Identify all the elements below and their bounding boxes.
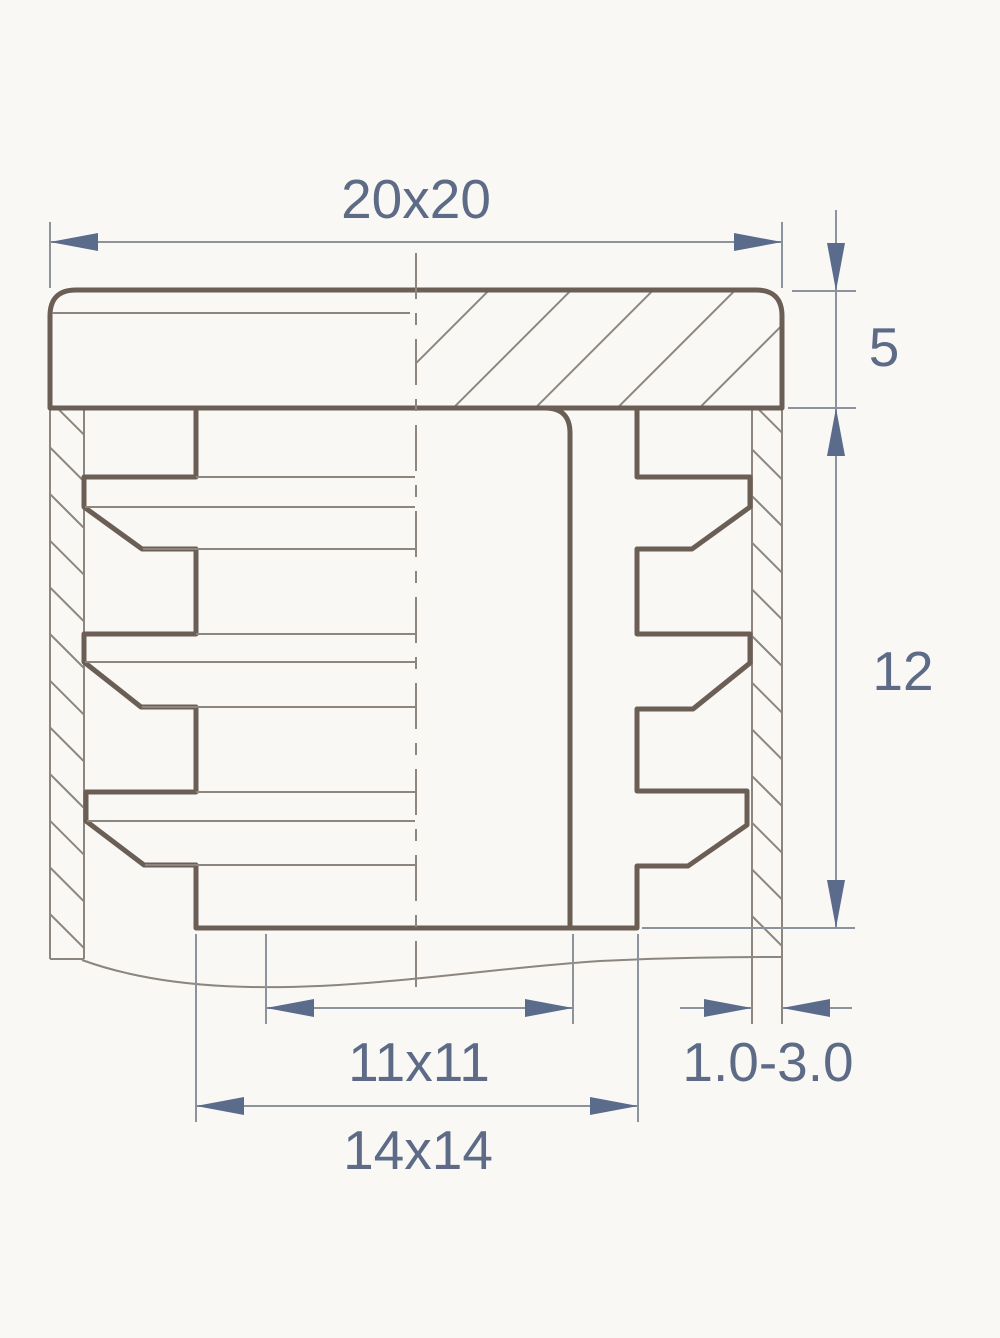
label-insertion-depth: 12 [872,640,933,702]
arrowhead-cap-bottom [827,408,845,456]
dimension-11x11: 11x11 [266,934,573,1093]
tube-left-wall [50,408,84,959]
arrowhead-inner [704,999,752,1017]
arrowhead-outer [782,999,830,1017]
label-inner-cavity: 11x11 [348,1031,490,1093]
arrowhead-cap-top [827,243,845,291]
arrowhead-right [734,233,782,251]
arrowhead-left [196,1097,244,1115]
label-outer-size: 20x20 [341,168,491,230]
label-cap-height: 5 [869,316,900,378]
label-wall-thickness: 1.0-3.0 [682,1031,853,1093]
insert-left-fin-profile [84,408,637,928]
arrowhead-right [590,1097,638,1115]
tube-insert-cross-section-drawing: 20x20 5 12 11x11 1.0-3.0 14x14 [0,0,1000,1333]
tube-right-wall [752,408,782,1024]
arrowhead-right [525,999,573,1017]
technical-drawing-page: 20x20 5 12 11x11 1.0-3.0 14x14 [0,0,1000,1333]
tube-break-line [82,957,782,987]
label-insert-body: 14x14 [343,1119,493,1181]
arrowhead-left [266,999,314,1017]
dimension-wall-thickness: 1.0-3.0 [680,999,854,1093]
left-half-edge-lines [85,477,415,865]
arrowhead-left [50,233,98,251]
arrowhead-body-bottom [827,880,845,928]
insert-sectioned-stem-and-fins [545,408,750,928]
